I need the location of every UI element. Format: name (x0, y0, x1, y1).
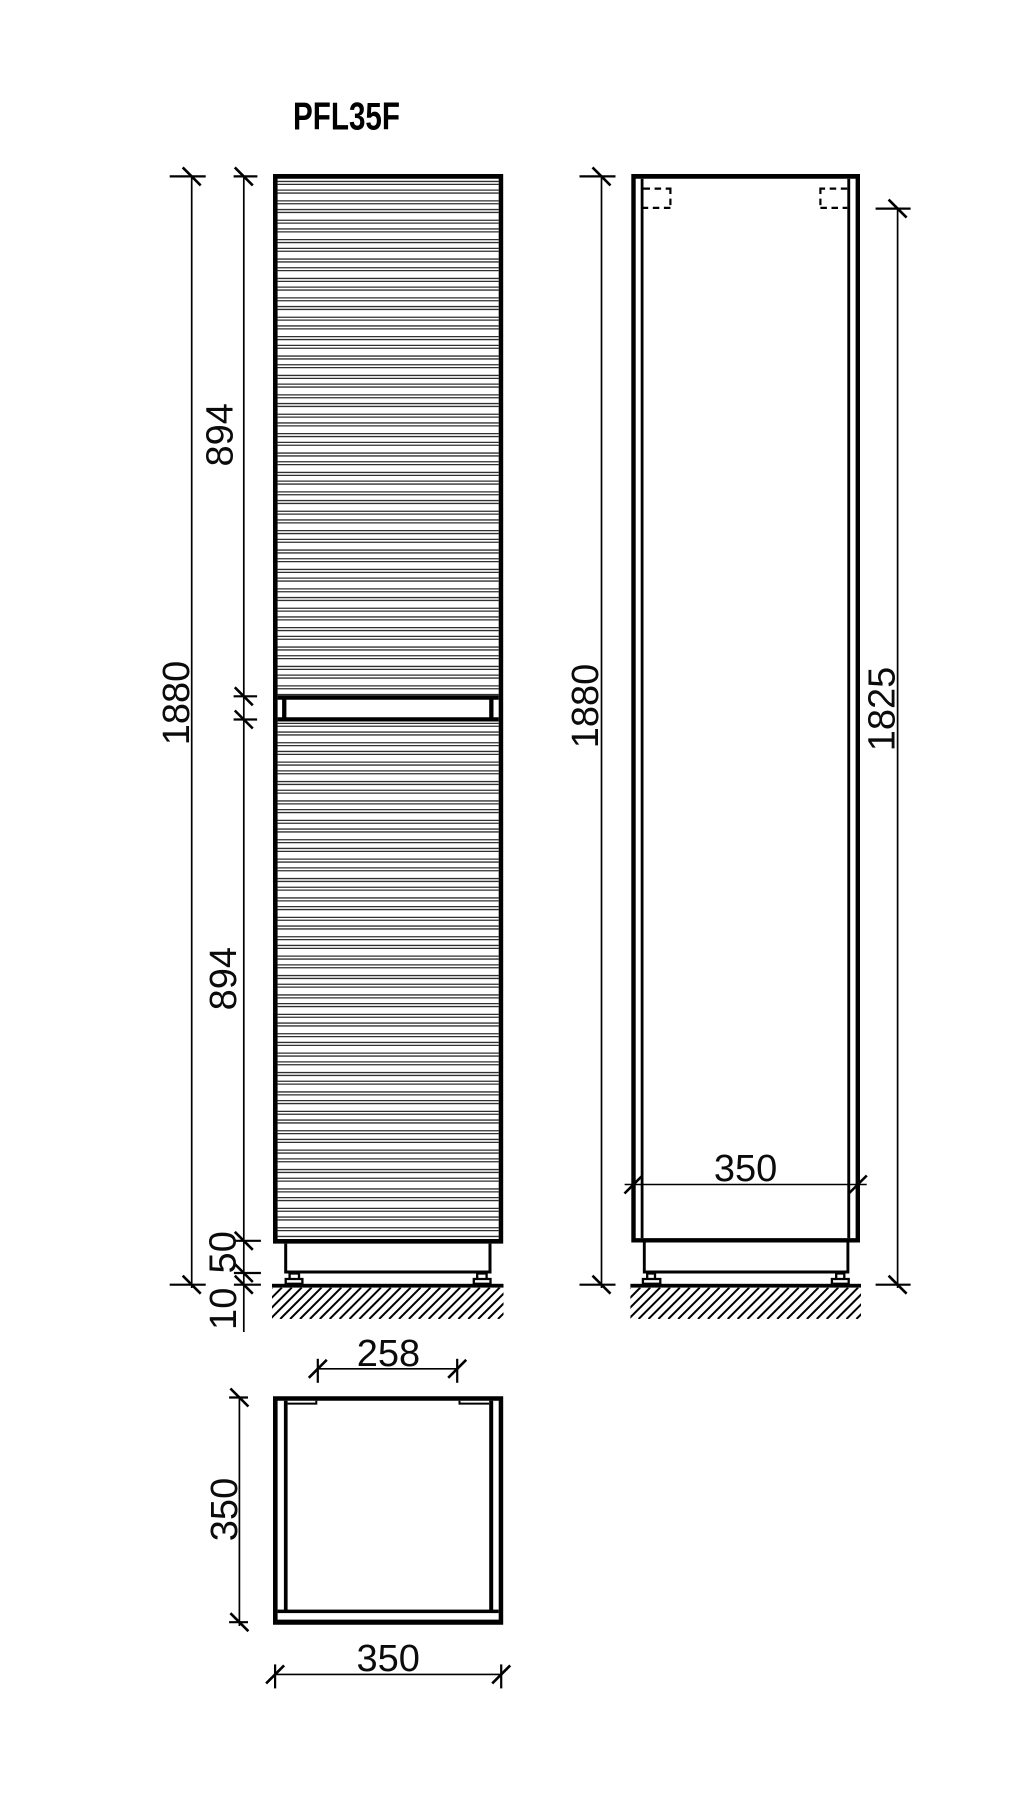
svg-text:350: 350 (356, 1638, 419, 1680)
svg-text:894: 894 (203, 947, 245, 1010)
svg-text:894: 894 (200, 403, 242, 466)
svg-text:50: 50 (203, 1231, 245, 1273)
svg-text:1880: 1880 (156, 661, 198, 746)
svg-text:1825: 1825 (861, 667, 903, 752)
svg-text:10: 10 (203, 1288, 245, 1330)
svg-text:PFL35F: PFL35F (293, 96, 400, 139)
svg-text:350: 350 (204, 1478, 246, 1541)
svg-text:1880: 1880 (565, 664, 607, 749)
svg-text:350: 350 (714, 1148, 777, 1190)
svg-text:258: 258 (357, 1333, 420, 1375)
